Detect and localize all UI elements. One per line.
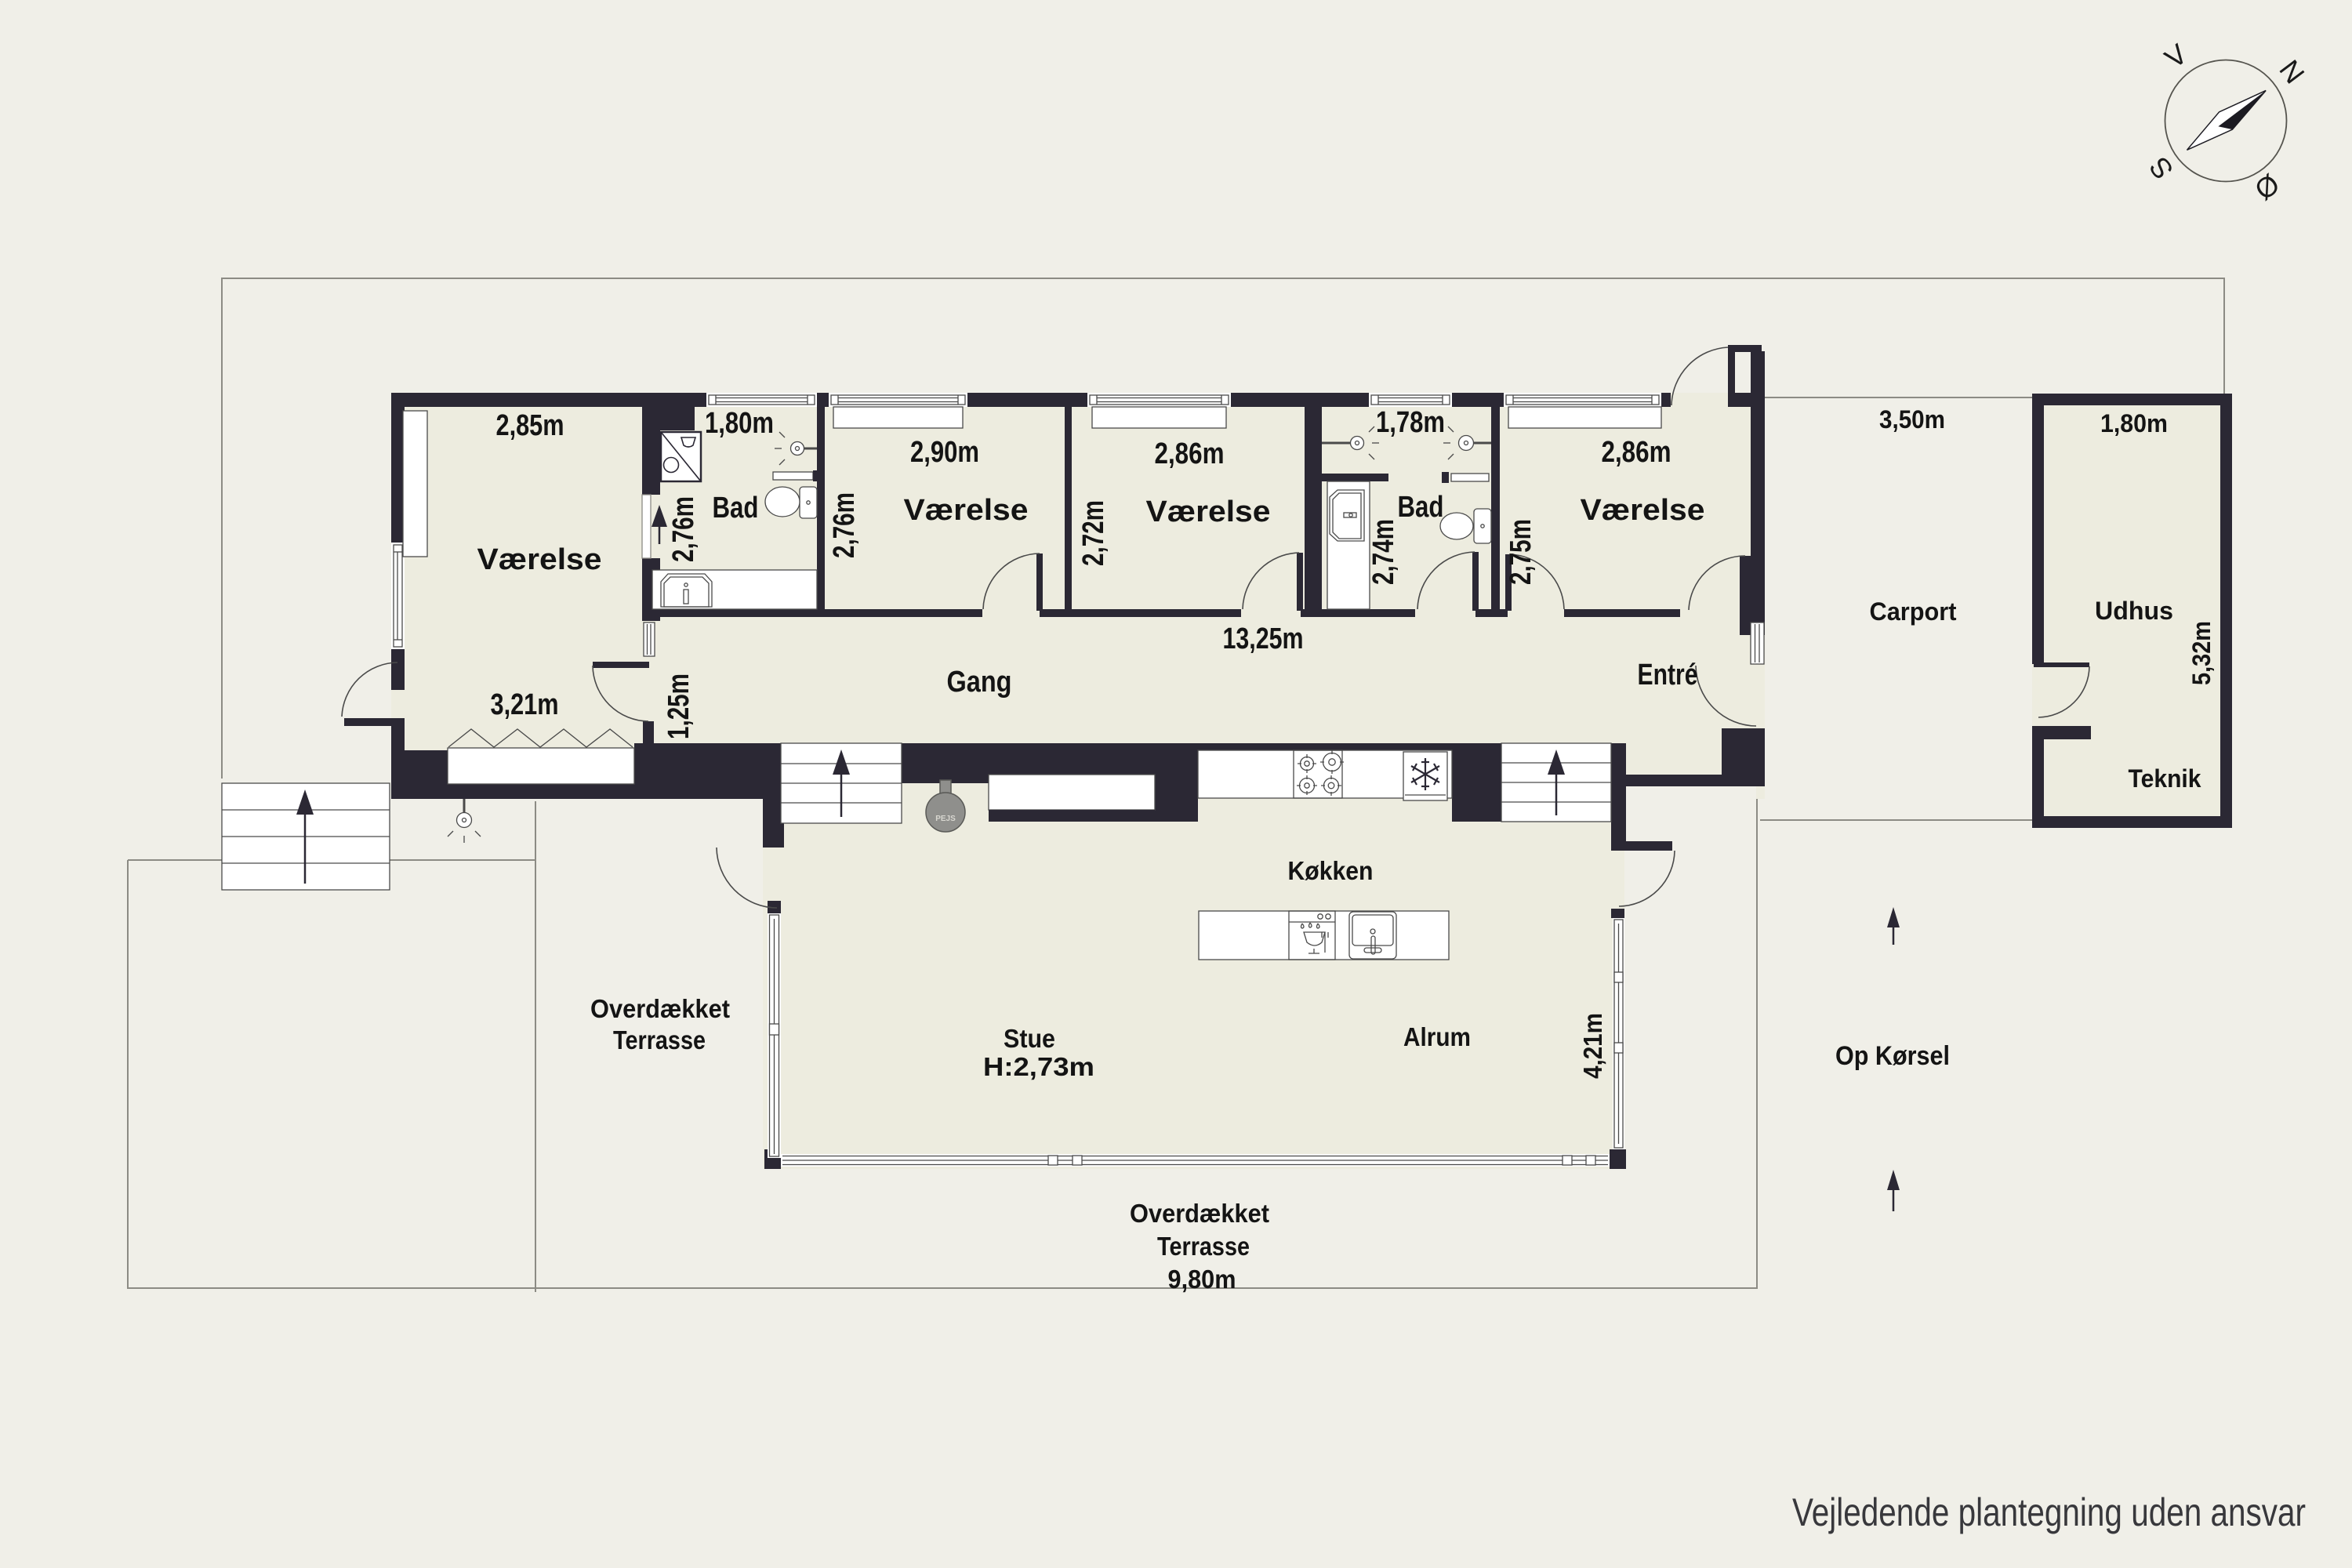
svg-text:Terrasse: Terrasse (1157, 1232, 1250, 1261)
svg-text:PEJS: PEJS (935, 815, 956, 823)
svg-text:Overdækket: Overdækket (590, 994, 730, 1023)
svg-text:2,76m: 2,76m (828, 492, 861, 558)
svg-text:2,75m: 2,75m (1504, 519, 1537, 585)
svg-text:Teknik: Teknik (2129, 764, 2201, 793)
svg-text:2,76m: 2,76m (667, 496, 700, 562)
svg-text:Op Kørsel: Op Kørsel (1835, 1041, 1950, 1071)
svg-text:Overdækket: Overdækket (1130, 1199, 1269, 1228)
svg-text:H:2,73m: H:2,73m (983, 1052, 1094, 1081)
svg-text:1,80m: 1,80m (2100, 409, 2168, 437)
svg-text:Værelse: Værelse (904, 494, 1029, 527)
svg-text:3,21m: 3,21m (491, 688, 559, 721)
svg-text:Udhus: Udhus (2095, 597, 2173, 625)
svg-text:Alrum: Alrum (1403, 1022, 1471, 1051)
svg-text:Stue: Stue (1004, 1024, 1055, 1053)
svg-text:2,72m: 2,72m (1077, 500, 1110, 566)
svg-text:2,86m: 2,86m (1602, 436, 1671, 469)
svg-text:Værelse: Værelse (1146, 495, 1271, 528)
svg-text:Værelse: Værelse (477, 543, 602, 576)
svg-text:Værelse: Værelse (1581, 494, 1705, 527)
svg-text:Carport: Carport (1870, 597, 1957, 626)
svg-text:1,80m: 1,80m (705, 407, 774, 440)
svg-text:1,78m: 1,78m (1376, 406, 1445, 439)
svg-text:Bad: Bad (713, 492, 759, 524)
svg-text:Terrasse: Terrasse (613, 1025, 706, 1054)
svg-text:Gang: Gang (947, 666, 1012, 699)
svg-text:5,32m: 5,32m (2187, 621, 2216, 685)
svg-text:1,25m: 1,25m (662, 673, 695, 739)
svg-text:13,25m: 13,25m (1223, 622, 1304, 655)
svg-text:3,50m: 3,50m (1879, 405, 1945, 434)
svg-text:4,21m: 4,21m (1578, 1013, 1607, 1079)
svg-text:Entré: Entré (1638, 659, 1698, 691)
svg-text:2,86m: 2,86m (1155, 437, 1225, 470)
svg-text:2,85m: 2,85m (496, 409, 564, 442)
svg-text:Køkken: Køkken (1288, 856, 1374, 885)
svg-text:Vejledende plantegning uden an: Vejledende plantegning uden ansvar (1792, 1490, 2306, 1534)
svg-text:9,80m: 9,80m (1168, 1265, 1236, 1294)
svg-text:2,74m: 2,74m (1367, 519, 1400, 585)
svg-text:2,90m: 2,90m (910, 436, 979, 469)
svg-text:Bad: Bad (1398, 491, 1444, 524)
